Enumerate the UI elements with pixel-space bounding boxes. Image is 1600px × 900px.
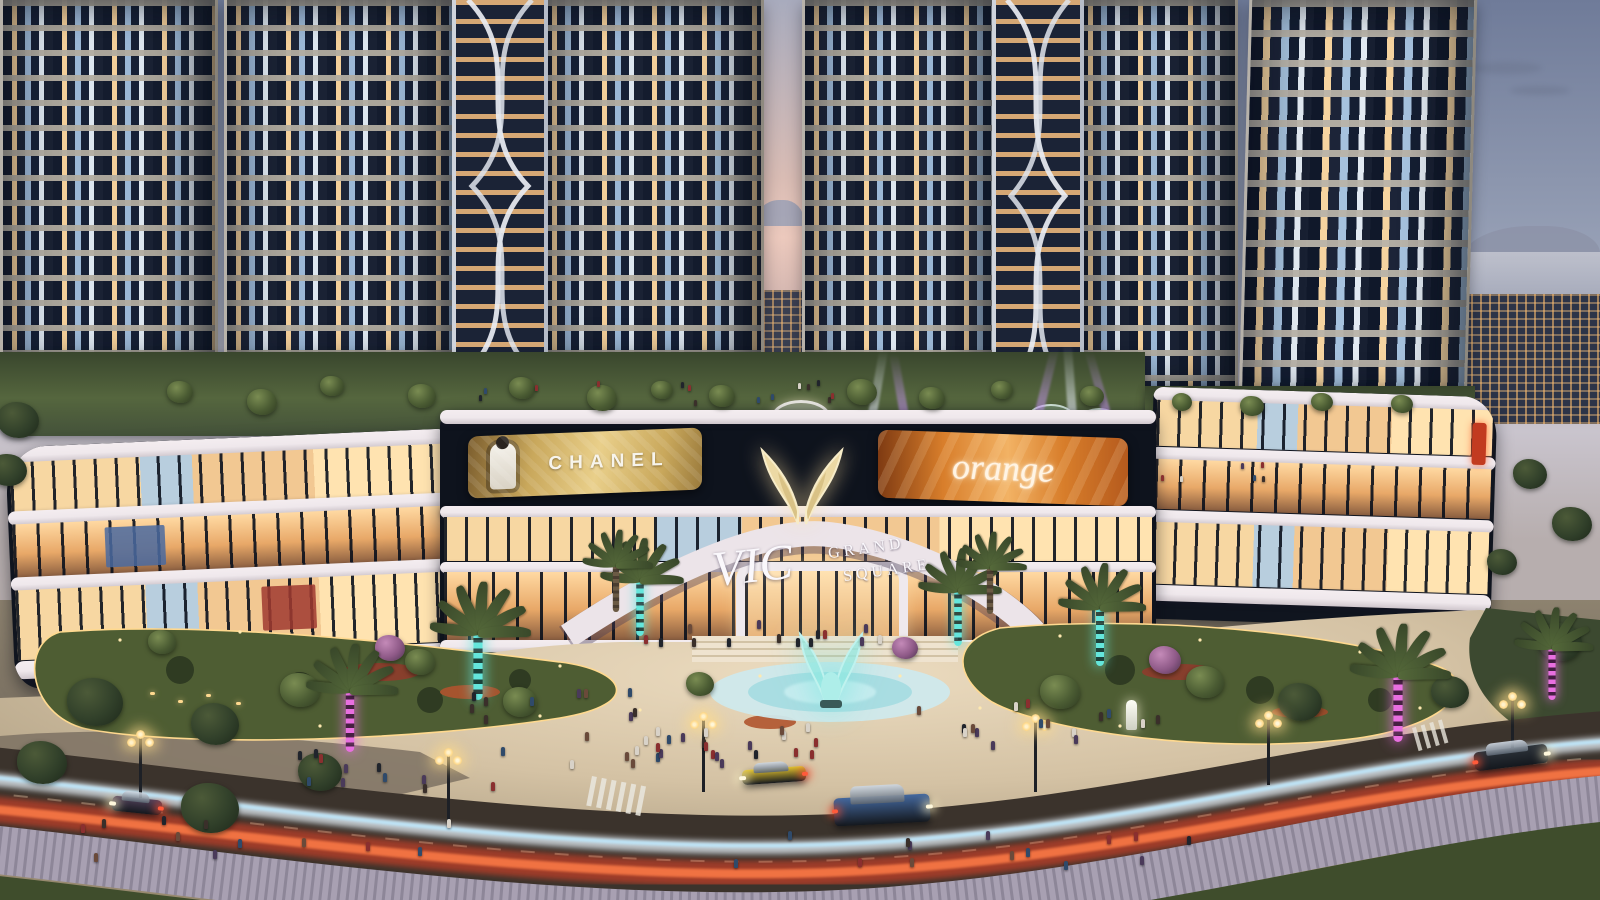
lamp-globe xyxy=(127,738,136,747)
pedestrian xyxy=(1026,848,1030,857)
pedestrian xyxy=(814,738,818,747)
wings-emblem-icon xyxy=(740,428,864,528)
storefront-blue xyxy=(105,525,167,568)
terrace-light xyxy=(150,692,155,695)
tree xyxy=(1240,396,1264,417)
pedestrian xyxy=(656,727,660,736)
pedestrian xyxy=(734,859,738,868)
helix-ribbon-icon xyxy=(456,0,544,372)
tree xyxy=(17,741,67,784)
pedestrian xyxy=(1014,702,1018,711)
pedestrian xyxy=(597,381,600,387)
pedestrian xyxy=(910,858,914,867)
pedestrian xyxy=(694,400,697,406)
residential-tower-5 xyxy=(1076,0,1238,392)
tree xyxy=(709,385,735,407)
tree xyxy=(67,678,123,726)
pedestrian xyxy=(577,689,581,698)
pedestrian xyxy=(472,692,476,701)
palm-frond xyxy=(1398,668,1451,680)
residential-tower-6 xyxy=(1239,0,1478,402)
tree xyxy=(1552,507,1592,541)
pedestrian xyxy=(715,752,719,761)
pedestrian xyxy=(1099,712,1103,721)
pedestrian xyxy=(470,704,474,713)
sea-haze xyxy=(1462,252,1600,298)
pedestrian xyxy=(631,759,635,768)
pedestrian xyxy=(1064,861,1068,870)
pedestrian xyxy=(688,624,692,633)
lamp-globe xyxy=(1508,692,1517,701)
pedestrian xyxy=(501,747,505,756)
pedestrian xyxy=(570,760,574,769)
pedestrian xyxy=(491,782,495,791)
palm-frond xyxy=(1552,642,1594,652)
cloud xyxy=(1472,62,1542,74)
pedestrian xyxy=(1140,856,1144,865)
tree xyxy=(1186,666,1224,699)
blossom-tree xyxy=(375,635,405,661)
pedestrian xyxy=(816,630,820,639)
pedestrian xyxy=(807,384,810,390)
chanel-billboard-text: CHANEL xyxy=(548,449,669,476)
tree xyxy=(1391,395,1413,414)
pedestrian xyxy=(1180,476,1183,482)
pedestrian xyxy=(1253,475,1256,481)
lamp-pole xyxy=(1267,713,1270,785)
pedestrian xyxy=(681,382,684,388)
pedestrian xyxy=(298,751,302,760)
palm-frond xyxy=(640,574,684,584)
lamp-globe xyxy=(453,756,462,765)
lamp-globe xyxy=(1031,714,1040,723)
residential-tower-4 xyxy=(802,0,998,392)
pedestrian xyxy=(806,723,810,732)
taillight xyxy=(832,809,838,813)
palm-frond xyxy=(478,626,531,638)
tree xyxy=(919,387,945,409)
tree xyxy=(167,381,193,403)
pedestrian xyxy=(681,733,685,742)
lamp-pole xyxy=(1034,716,1037,792)
pedestrian xyxy=(794,748,798,757)
tree xyxy=(405,649,435,675)
pedestrian xyxy=(704,728,708,737)
pedestrian xyxy=(423,784,427,793)
headlight xyxy=(109,801,116,806)
palm-frond xyxy=(990,562,1027,571)
pedestrian xyxy=(377,763,381,772)
pedestrian xyxy=(1241,463,1244,469)
car-cabin xyxy=(753,761,789,773)
blossom-tree xyxy=(892,637,918,659)
tree xyxy=(1080,386,1104,407)
lamp-globe xyxy=(1264,711,1273,720)
pedestrian xyxy=(809,638,813,647)
pedestrian xyxy=(422,775,426,784)
lamp-pole xyxy=(702,714,705,792)
pedestrian xyxy=(633,708,637,717)
pedestrian xyxy=(692,638,696,647)
tree xyxy=(587,385,617,411)
terrace-light xyxy=(178,700,183,703)
white-angel-statue xyxy=(1126,700,1137,730)
pedestrian xyxy=(1026,699,1030,708)
pedestrian xyxy=(1074,735,1078,744)
lamp-globe xyxy=(444,748,453,757)
pedestrian xyxy=(986,831,990,840)
pedestrian xyxy=(796,638,800,647)
tree xyxy=(1513,459,1547,488)
tree xyxy=(148,630,176,654)
tower-helix-spine-right xyxy=(992,0,1084,392)
pedestrian xyxy=(530,697,534,706)
pedestrian xyxy=(341,778,345,787)
pedestrian xyxy=(906,838,910,847)
tree xyxy=(1278,683,1322,721)
pedestrian xyxy=(307,777,311,786)
lamp-globe xyxy=(1255,719,1264,728)
pedestrian xyxy=(1156,715,1160,724)
pedestrian xyxy=(484,715,488,724)
taillight xyxy=(158,806,164,811)
pedestrian xyxy=(917,706,921,715)
pedestrian xyxy=(1141,719,1145,728)
pedestrian xyxy=(479,395,482,401)
tree xyxy=(0,402,39,438)
pedestrian xyxy=(823,630,827,639)
pedestrian xyxy=(667,735,671,744)
lamp-pole xyxy=(139,732,142,798)
pedestrian xyxy=(314,749,318,758)
tree xyxy=(509,377,535,399)
headlight xyxy=(739,776,746,780)
vic-grand-square-rendering: CHANEL orange VIC GRAND SQUARE xyxy=(0,0,1600,900)
pedestrian xyxy=(777,634,781,643)
lamp-globe xyxy=(1273,719,1282,728)
pedestrian xyxy=(418,847,422,856)
lamp-globe xyxy=(699,712,708,721)
tree xyxy=(247,389,277,415)
lamp-globe xyxy=(435,756,444,765)
pedestrian xyxy=(810,750,814,759)
pedestrian xyxy=(162,816,166,825)
pedestrian xyxy=(344,764,348,773)
red-banner-sign xyxy=(1471,423,1486,465)
palm-frond xyxy=(350,684,398,695)
pedestrian xyxy=(1261,462,1264,468)
helix-ribbon-icon xyxy=(996,0,1080,392)
pedestrian xyxy=(860,637,864,646)
pedestrian xyxy=(1046,719,1050,728)
headlight xyxy=(1544,751,1551,756)
pedestrian xyxy=(991,741,995,750)
pedestrian xyxy=(176,832,180,841)
pedestrian xyxy=(644,736,648,745)
tree xyxy=(1172,393,1192,410)
pedestrian xyxy=(757,620,761,629)
tree xyxy=(1431,676,1469,709)
lamp-globe xyxy=(690,720,699,729)
blossom-tree xyxy=(1149,646,1181,674)
pedestrian xyxy=(780,726,784,735)
pedestrian xyxy=(659,749,663,758)
lamp-globe xyxy=(708,720,717,729)
car-cabin xyxy=(850,784,905,805)
pedestrian xyxy=(1187,836,1191,845)
terrace-light xyxy=(236,702,241,705)
pedestrian xyxy=(1107,709,1111,718)
tower-helix-spine-left xyxy=(452,0,548,372)
fashion-model-graphic xyxy=(490,443,516,490)
residential-tower-3 xyxy=(540,0,764,368)
pedestrian xyxy=(238,839,242,848)
pedestrian xyxy=(727,638,731,647)
pedestrian xyxy=(688,385,691,391)
pedestrian xyxy=(1262,476,1265,482)
lamp-globe xyxy=(1022,722,1031,731)
chanel-billboard: CHANEL xyxy=(468,428,702,499)
winged-fountain-statue xyxy=(796,612,866,708)
lamp-pole xyxy=(447,750,450,822)
palm-frond xyxy=(958,584,1002,594)
pedestrian xyxy=(447,819,451,828)
pedestrian xyxy=(831,393,834,399)
tree xyxy=(847,379,877,405)
tree xyxy=(991,381,1013,400)
pedestrian xyxy=(1107,835,1111,844)
lamp-globe xyxy=(1499,700,1508,709)
pedestrian xyxy=(757,397,760,403)
palm-frond xyxy=(1100,601,1146,612)
pedestrian xyxy=(213,850,217,859)
pedestrian xyxy=(864,624,868,633)
residential-tower-2 xyxy=(224,0,458,372)
pedestrian xyxy=(484,388,487,394)
tree xyxy=(408,384,436,408)
pedestrian xyxy=(484,697,488,706)
pedestrian xyxy=(771,394,774,400)
palm-frond xyxy=(616,560,653,569)
pedestrian xyxy=(585,732,589,741)
pedestrian xyxy=(720,759,724,768)
pedestrian xyxy=(963,728,967,737)
facade-band xyxy=(440,410,1156,424)
lamp-globe xyxy=(145,738,154,747)
cloud xyxy=(1510,86,1570,95)
pedestrian xyxy=(625,752,629,761)
tree xyxy=(1040,675,1080,709)
pedestrian xyxy=(366,842,370,851)
lamp-globe xyxy=(1517,700,1526,709)
pedestrian xyxy=(817,380,820,386)
pedestrian xyxy=(788,831,792,840)
pedestrian xyxy=(878,635,882,644)
pedestrian xyxy=(1161,475,1164,481)
pedestrian xyxy=(94,853,98,862)
pedestrian xyxy=(971,724,975,733)
suv xyxy=(833,794,930,827)
pedestrian xyxy=(81,824,85,833)
pedestrian xyxy=(644,635,648,644)
taillight xyxy=(1472,760,1478,765)
pedestrian xyxy=(754,750,758,759)
taillight xyxy=(802,772,808,776)
pedestrian xyxy=(975,728,979,737)
residential-tower-1 xyxy=(0,0,218,372)
pedestrian xyxy=(628,688,632,697)
pedestrian xyxy=(102,819,106,828)
tree xyxy=(181,783,239,833)
pedestrian xyxy=(858,858,862,867)
pedestrian xyxy=(635,746,639,755)
terrace-light xyxy=(206,694,211,697)
pedestrian xyxy=(1134,832,1138,841)
tree xyxy=(1311,393,1333,412)
pedestrian xyxy=(535,385,538,391)
pedestrian xyxy=(1010,851,1014,860)
pedestrian xyxy=(302,838,306,847)
led-billboard-text: orange xyxy=(952,445,1054,491)
pedestrian xyxy=(319,754,323,763)
tree xyxy=(320,376,344,397)
pedestrian xyxy=(704,742,708,751)
tree xyxy=(191,703,239,744)
pedestrian xyxy=(656,743,660,752)
tree xyxy=(1487,549,1517,575)
tree xyxy=(651,381,673,400)
orange-led-billboard: orange xyxy=(878,430,1128,507)
pedestrian xyxy=(659,638,663,647)
pedestrian xyxy=(383,773,387,782)
pedestrian xyxy=(1039,719,1043,728)
pedestrian xyxy=(584,689,588,698)
pedestrian xyxy=(204,820,208,829)
pedestrian xyxy=(748,741,752,750)
tree xyxy=(686,672,714,696)
mall-glass-floor xyxy=(1154,459,1491,520)
lamp-globe xyxy=(136,730,145,739)
